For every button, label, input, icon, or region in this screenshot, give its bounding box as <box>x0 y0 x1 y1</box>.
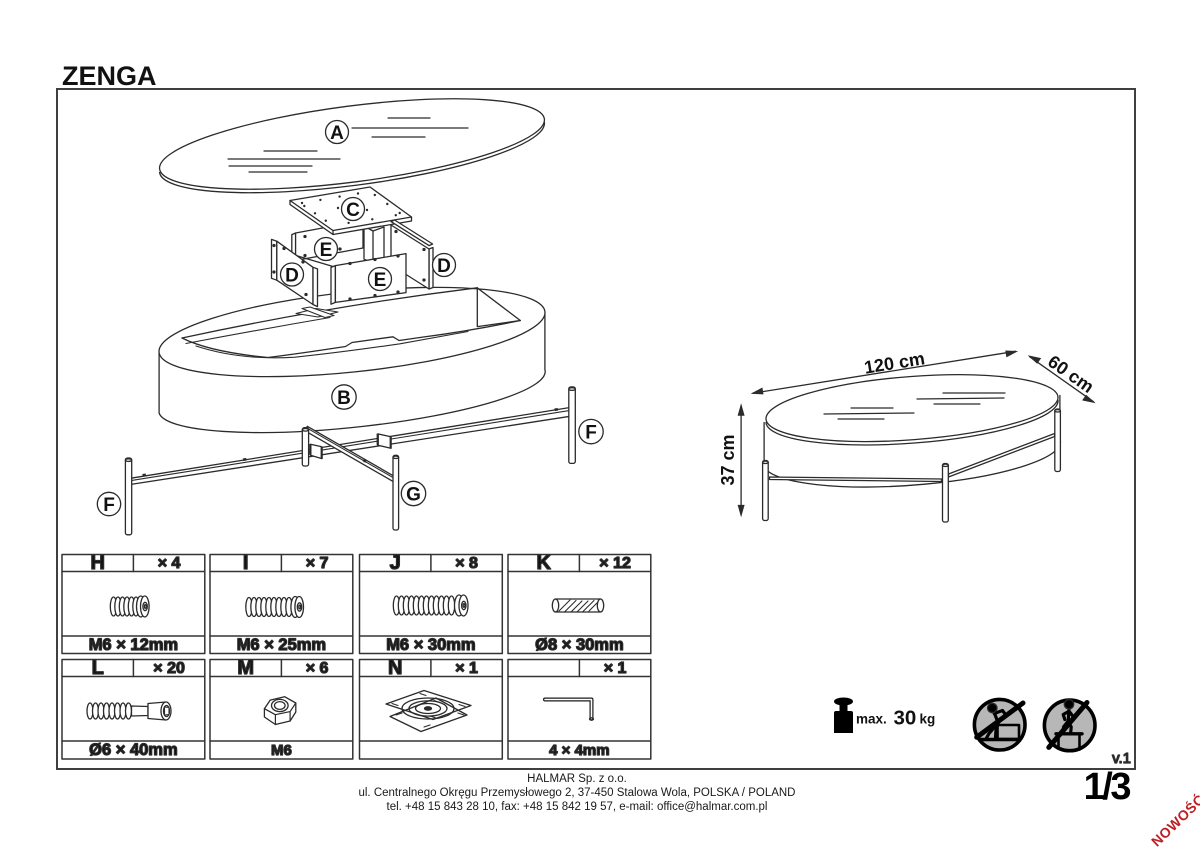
svg-text:37 cm: 37 cm <box>718 434 738 485</box>
svg-text:× 6: × 6 <box>306 660 329 677</box>
svg-text:× 1: × 1 <box>455 660 478 677</box>
svg-text:× 8: × 8 <box>455 555 478 572</box>
svg-text:Ø6 × 40mm: Ø6 × 40mm <box>89 741 178 759</box>
svg-text:M6 × 12mm: M6 × 12mm <box>89 636 178 654</box>
svg-text:F: F <box>103 495 115 516</box>
svg-text:B: B <box>337 388 351 409</box>
svg-text:E: E <box>374 270 387 291</box>
svg-text:M6 × 25mm: M6 × 25mm <box>237 636 326 654</box>
svg-text:G: G <box>406 484 421 505</box>
svg-text:30: 30 <box>894 707 917 730</box>
svg-text:M6 × 30mm: M6 × 30mm <box>386 636 475 654</box>
svg-text:M6: M6 <box>271 742 292 759</box>
svg-text:× 7: × 7 <box>306 555 329 572</box>
svg-text:D: D <box>437 256 451 277</box>
svg-text:I: I <box>243 552 249 574</box>
svg-text:max.: max. <box>856 712 887 727</box>
svg-text:× 4: × 4 <box>158 555 181 572</box>
svg-text:× 1: × 1 <box>604 660 627 677</box>
svg-text:120 cm: 120 cm <box>863 348 926 377</box>
svg-text:E: E <box>320 240 333 261</box>
svg-text:J: J <box>390 552 401 574</box>
svg-text:kg: kg <box>920 712 936 727</box>
svg-text:4 × 4mm: 4 × 4mm <box>549 742 609 759</box>
svg-text:C: C <box>346 200 360 221</box>
svg-text:L: L <box>92 657 104 679</box>
svg-text:N: N <box>388 657 402 679</box>
svg-text:D: D <box>285 265 299 286</box>
svg-text:Ø8 × 30mm: Ø8 × 30mm <box>535 636 624 654</box>
svg-text:× 12: × 12 <box>599 555 631 572</box>
svg-text:F: F <box>585 422 597 443</box>
svg-text:M: M <box>237 657 254 679</box>
svg-text:K: K <box>536 552 551 574</box>
svg-text:× 20: × 20 <box>153 660 185 677</box>
svg-text:H: H <box>90 552 104 574</box>
svg-text:v.1: v.1 <box>1112 750 1131 767</box>
svg-text:A: A <box>330 123 344 144</box>
